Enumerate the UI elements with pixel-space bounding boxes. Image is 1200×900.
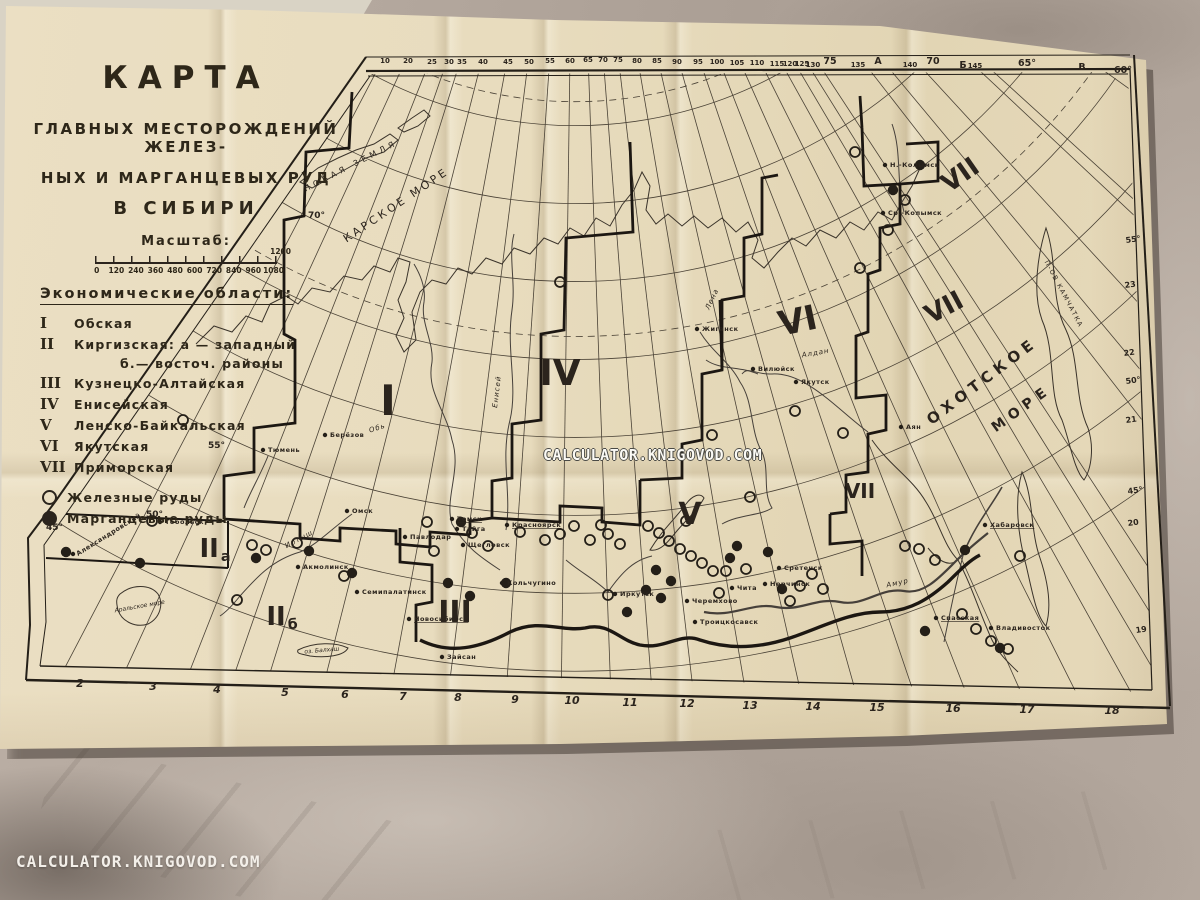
scale-bar-ruler bbox=[95, 256, 277, 264]
town-dot bbox=[455, 527, 459, 531]
river-label: Алдан bbox=[800, 347, 830, 360]
map-title: КАРТА bbox=[18, 60, 354, 96]
photo-scene: БерёзовТюменьТобольскОмскПавлодарАкмолин… bbox=[0, 0, 1200, 900]
legend-region-item: IVЕнисейская bbox=[40, 395, 330, 413]
bottom-edge-number: 8 bbox=[454, 691, 462, 704]
place-label: Кольчугино bbox=[507, 579, 556, 587]
iron-ore-point bbox=[838, 428, 848, 438]
meridian-line bbox=[637, 55, 753, 735]
place-label: Якутск bbox=[801, 378, 830, 386]
scale-tick-value: 240 bbox=[126, 266, 146, 275]
legend-heading: Экономические области: bbox=[40, 286, 293, 305]
legend-region-numeral: VI bbox=[40, 437, 74, 455]
bottom-edge-number: 12 bbox=[679, 697, 695, 710]
legend-region-numeral: V bbox=[40, 416, 74, 434]
town-dot bbox=[613, 592, 617, 596]
iron-ore-icon bbox=[42, 490, 57, 505]
manganese-ore-point bbox=[304, 546, 314, 556]
top-edge-number: 135 bbox=[851, 61, 866, 69]
top-edge-number: 65 bbox=[583, 56, 593, 64]
place-label: Тайга bbox=[462, 525, 486, 533]
region-numeral: VII bbox=[845, 479, 875, 503]
top-edge-number: 60° bbox=[1114, 65, 1132, 76]
town-dot bbox=[693, 620, 697, 624]
sakhalin-island bbox=[1018, 472, 1049, 626]
town-dot bbox=[450, 517, 454, 521]
top-edge-number: 65° bbox=[1018, 58, 1036, 69]
meridian-line bbox=[561, 55, 570, 735]
right-edge-number: 21 bbox=[1125, 414, 1138, 425]
right-edge-number: 50° bbox=[1125, 375, 1141, 386]
river-label: Енисей bbox=[491, 375, 503, 408]
top-edge-number: 35 bbox=[457, 58, 467, 66]
legend-region-name: Енисейская bbox=[74, 397, 169, 412]
bottom-edge-number: 13 bbox=[742, 699, 758, 712]
bottom-edge-number: 4 bbox=[212, 683, 221, 696]
manganese-ore-point bbox=[920, 626, 930, 636]
legend-region-numeral: III bbox=[40, 374, 74, 392]
river-lena bbox=[700, 332, 772, 524]
manganese-ore-icon bbox=[42, 511, 57, 526]
top-edge-number: 50 bbox=[524, 58, 534, 66]
place-label: Вилюйск bbox=[758, 365, 795, 373]
lake-label: оз. Балхаш bbox=[304, 645, 340, 655]
top-edge-number: 145 bbox=[968, 62, 983, 70]
region-numeral: III bbox=[438, 595, 472, 630]
top-edge-number: 80 bbox=[632, 57, 642, 65]
place-label: Владивосток bbox=[996, 624, 1051, 632]
legend-region-item: IIIКузнецко-Алтайская bbox=[40, 374, 330, 392]
place-label: Ср.-Колымск bbox=[888, 209, 942, 217]
region-numeral: VII bbox=[920, 285, 969, 330]
town-dot bbox=[403, 535, 407, 539]
place-label: Нерчинск bbox=[770, 580, 810, 588]
top-edge-number: 130 bbox=[806, 61, 821, 69]
legend-region-name: б.— восточ. районы bbox=[120, 356, 284, 371]
legend-region-name: Якутская bbox=[74, 439, 149, 454]
scale-tick-value: 720 bbox=[204, 266, 224, 275]
place-label: Омск bbox=[352, 507, 373, 515]
place-label: Зайсан bbox=[447, 653, 476, 661]
right-edge-number: 19 bbox=[1135, 624, 1148, 635]
iron-ore-point bbox=[261, 545, 271, 555]
right-edge-number: 20 bbox=[1127, 517, 1140, 528]
town-dot bbox=[296, 565, 300, 569]
manganese-ore-point bbox=[666, 576, 676, 586]
top-edge-number: Б bbox=[959, 60, 966, 71]
top-edge-number: 85 bbox=[652, 57, 662, 65]
meridian-line bbox=[963, 55, 1200, 735]
iron-ore-point bbox=[643, 521, 653, 531]
watermark-center: CALCULATOR.KNIGOVOD.COM bbox=[543, 446, 762, 464]
lake-label: Аральское море bbox=[113, 599, 166, 615]
town-dot bbox=[730, 586, 734, 590]
river-amur-lower bbox=[964, 487, 1002, 552]
town-dot bbox=[685, 599, 689, 603]
map-subtitle-line2: НЫХ И МАРГАНЦЕВЫХ РУД bbox=[18, 169, 354, 187]
legend-region-item: VIЯкутская bbox=[40, 437, 330, 455]
legend-ore-list: Железные рудыМарганцевые руды bbox=[40, 490, 330, 526]
place-label: Красноярск bbox=[512, 521, 561, 529]
place-label: Аян bbox=[906, 423, 921, 431]
town-dot bbox=[763, 582, 767, 586]
meridian-line bbox=[677, 55, 868, 735]
town-dot bbox=[345, 509, 349, 513]
top-edge-number: 40 bbox=[478, 58, 488, 66]
town-dot bbox=[934, 616, 938, 620]
boundary-region-4-west bbox=[470, 142, 633, 535]
manganese-ore-point bbox=[656, 593, 666, 603]
iron-ore-point bbox=[555, 277, 565, 287]
iron-ore-point bbox=[697, 558, 707, 568]
iron-ore-point bbox=[603, 529, 613, 539]
legend-region-item: IIКиргизская: а — западный bbox=[40, 335, 330, 353]
meridian-line bbox=[717, 55, 983, 735]
town-dot bbox=[883, 163, 887, 167]
title-block: КАРТА ГЛАВНЫХ МЕСТОРОЖДЕНИЙ ЖЕЛЕЗ- НЫХ И… bbox=[18, 60, 354, 275]
place-label: Троицкосавск bbox=[700, 618, 759, 626]
top-edge-number: 25 bbox=[427, 58, 437, 66]
top-edge-number: 30 bbox=[444, 58, 454, 66]
iron-ore-point bbox=[971, 624, 981, 634]
place-label: Черемхово bbox=[692, 597, 738, 605]
region-numeral: VII bbox=[936, 152, 986, 199]
iron-ore-point bbox=[615, 539, 625, 549]
meridian-line bbox=[383, 55, 508, 735]
scale-label: Масштаб: bbox=[18, 234, 354, 249]
meridian-line bbox=[790, 55, 1192, 735]
right-edge-number: 45° bbox=[1127, 485, 1143, 496]
top-edge-number: 105 bbox=[730, 59, 745, 67]
bottom-edge-number: 5 bbox=[281, 686, 289, 699]
iron-ore-point bbox=[429, 546, 439, 556]
manganese-ore-point bbox=[651, 565, 661, 575]
top-edge-number: 70 bbox=[598, 56, 608, 64]
region-numeral: V bbox=[678, 497, 702, 532]
manganese-ore-point bbox=[888, 185, 898, 195]
meridian-line bbox=[588, 55, 612, 735]
boundary-region-4-south bbox=[492, 480, 640, 525]
iron-ore-point bbox=[790, 406, 800, 416]
bottom-edge-number: 15 bbox=[869, 701, 885, 714]
meridian-line bbox=[698, 55, 928, 735]
manganese-ore-point bbox=[960, 545, 970, 555]
iron-ore-point bbox=[686, 551, 696, 561]
iron-ore-point bbox=[850, 147, 860, 157]
top-edge-number: 70 bbox=[926, 56, 940, 67]
map-subtitle-line3: В СИБИРИ bbox=[18, 198, 354, 219]
town-dot bbox=[461, 543, 465, 547]
town-dot bbox=[500, 581, 504, 585]
legend-region-numeral: I bbox=[40, 314, 74, 332]
top-edge-number: 60 bbox=[565, 57, 575, 65]
right-edge-number: 55° bbox=[1125, 234, 1141, 245]
town-dot bbox=[355, 590, 359, 594]
region-numeral: IIб bbox=[266, 602, 297, 633]
sea-label: КАРСКОЕ МОРЕ bbox=[341, 165, 451, 245]
top-edge-number: 10 bbox=[380, 57, 390, 65]
town-dot bbox=[989, 626, 993, 630]
top-edge-number: 45 bbox=[503, 58, 513, 66]
manganese-ore-point bbox=[995, 643, 1005, 653]
manganese-ore-point bbox=[763, 547, 773, 557]
town-dot bbox=[751, 367, 755, 371]
legend-region-numeral: II bbox=[40, 335, 74, 353]
top-edge-number: 75 bbox=[823, 56, 836, 67]
legend-ore-label: Марганцевые руды bbox=[67, 511, 228, 526]
place-label: Н.-Колымск bbox=[890, 161, 940, 169]
town-dot bbox=[71, 552, 75, 556]
bottom-edge-number: 7 bbox=[399, 690, 407, 703]
boundary-region-7-west bbox=[830, 128, 900, 514]
manganese-ore-point bbox=[135, 558, 145, 568]
manganese-ore-point bbox=[622, 607, 632, 617]
bottom-edge-number: 6 bbox=[341, 688, 349, 701]
legend-region-item: VIIПриморская bbox=[40, 458, 330, 476]
scale-tick-value: 480 bbox=[165, 266, 185, 275]
manganese-ore-point bbox=[251, 553, 261, 563]
iron-ore-point bbox=[741, 564, 751, 574]
scale-bar: 1200 01202403604806007208409601080 bbox=[95, 256, 277, 275]
manganese-ore-point bbox=[61, 547, 71, 557]
scale-tick-value: 840 bbox=[224, 266, 244, 275]
top-edge-number: 140 bbox=[903, 61, 918, 69]
top-edge-number: 90 bbox=[672, 58, 682, 66]
bottom-edge-number: 16 bbox=[945, 702, 961, 715]
iron-ore-point bbox=[707, 430, 717, 440]
legend-ore-label: Железные руды bbox=[67, 490, 203, 505]
iron-ore-point bbox=[721, 566, 731, 576]
bottom-edge-number: 11 bbox=[622, 696, 637, 709]
region-numeral: VI bbox=[774, 298, 820, 345]
town-dot bbox=[794, 380, 798, 384]
iron-ore-point bbox=[585, 535, 595, 545]
top-edge-number: 75 bbox=[613, 56, 623, 64]
town-dot bbox=[983, 523, 987, 527]
legend-region-list: IОбскаяIIКиргизская: а — западныйб.— вос… bbox=[40, 314, 330, 476]
town-dot bbox=[881, 211, 885, 215]
town-dot bbox=[777, 566, 781, 570]
legend-region-item: IОбская bbox=[40, 314, 330, 332]
place-label: Акмолинск bbox=[303, 563, 349, 571]
meridian-line bbox=[737, 55, 1040, 735]
place-label: Семипалатинск bbox=[362, 588, 427, 596]
region-numeral: IIа bbox=[199, 534, 230, 565]
bottom-edge-number: 9 bbox=[511, 693, 519, 706]
top-edge-number: 100 bbox=[710, 58, 725, 66]
bottom-edge-number: 2 bbox=[76, 677, 84, 690]
river-label: Амур bbox=[885, 577, 910, 590]
top-edge-number: 95 bbox=[693, 58, 703, 66]
bottom-edge-number: 17 bbox=[1019, 703, 1035, 716]
place-label: Спасская bbox=[941, 614, 979, 622]
scale-tick-values: 01202403604806007208409601080 bbox=[87, 266, 283, 275]
town-dot bbox=[899, 425, 903, 429]
scale-tick-value: 120 bbox=[107, 266, 127, 275]
scale-tick-value: 0 bbox=[87, 266, 107, 275]
place-label: Берёзов bbox=[330, 431, 364, 439]
boundary-region-7-south bbox=[830, 514, 862, 576]
manganese-ore-point bbox=[443, 578, 453, 588]
top-edge-number: В bbox=[1078, 62, 1085, 73]
legend-ore-item: Марганцевые руды bbox=[40, 511, 330, 526]
meridian-line bbox=[443, 55, 529, 735]
top-edge-number: 55 bbox=[545, 57, 555, 65]
watermark-bottom-left: CALCULATOR.KNIGOVOD.COM bbox=[16, 852, 261, 871]
place-label: Хабаровск bbox=[990, 521, 1034, 529]
scale-tick-value: 1080 bbox=[263, 266, 283, 275]
scale-tick-value: 600 bbox=[185, 266, 205, 275]
iron-ore-point bbox=[708, 566, 718, 576]
bottom-edge-number: 10 bbox=[564, 694, 580, 707]
legend-region-name: Ленско-Байкальская bbox=[74, 418, 246, 433]
river-angara bbox=[566, 556, 652, 592]
legend-region-name: Кузнецко-Алтайская bbox=[74, 376, 246, 391]
region-numeral: IV bbox=[539, 353, 580, 394]
legend-region-item: б.— восточ. районы bbox=[40, 356, 330, 371]
legend-region-numeral: IV bbox=[40, 395, 74, 413]
manganese-ore-point bbox=[725, 553, 735, 563]
town-dot bbox=[695, 327, 699, 331]
town-dot bbox=[407, 617, 411, 621]
legend-ore-item: Железные руды bbox=[40, 490, 330, 505]
right-edge-number: 23 bbox=[1124, 280, 1136, 290]
place-label: Сретенск bbox=[784, 564, 823, 572]
river-yenisei bbox=[506, 234, 514, 530]
sea-label: П-ОВ КАМЧАТКА bbox=[1043, 259, 1085, 329]
map-subtitle-line1: ГЛАВНЫХ МЕСТОРОЖДЕНИЙ ЖЕЛЕЗ- bbox=[18, 120, 354, 156]
iron-ore-point bbox=[930, 555, 940, 565]
legend-region-name: Киргизская: а — западный bbox=[74, 337, 296, 352]
scale-tick-value: 960 bbox=[244, 266, 264, 275]
scale-end-value: 1200 bbox=[270, 247, 291, 256]
place-label: Чита bbox=[737, 584, 757, 592]
place-label: Иркутск bbox=[620, 590, 654, 598]
iron-ore-point bbox=[540, 535, 550, 545]
top-edge-number: А bbox=[874, 56, 882, 67]
bottom-edge-number: 14 bbox=[805, 700, 820, 713]
right-edge-number: 22 bbox=[1123, 348, 1135, 358]
legend-region-numeral: VII bbox=[40, 458, 74, 476]
place-label: Павлодар bbox=[410, 533, 451, 541]
top-edge-number: 20 bbox=[403, 57, 413, 65]
top-edge-number: 110 bbox=[750, 59, 765, 67]
manganese-ore-point bbox=[732, 541, 742, 551]
scale-tick-value: 360 bbox=[146, 266, 166, 275]
river-label: Лена bbox=[703, 287, 720, 312]
iron-ore-point bbox=[569, 521, 579, 531]
bottom-edge-number: 18 bbox=[1104, 704, 1120, 717]
iron-ore-point bbox=[247, 540, 257, 550]
legend-region-name: Приморская bbox=[74, 460, 174, 475]
iron-ore-point bbox=[422, 517, 432, 527]
place-label: Жиганск bbox=[702, 325, 739, 333]
town-dot bbox=[440, 655, 444, 659]
legend-region-name: Обская bbox=[74, 316, 133, 331]
place-label: Томск bbox=[457, 515, 482, 523]
iron-ore-point bbox=[785, 596, 795, 606]
town-dot bbox=[505, 523, 509, 527]
bottom-edge-number: 3 bbox=[149, 680, 157, 693]
legend-region-item: VЛенско-Байкальская bbox=[40, 416, 330, 434]
legend: Экономические области: IОбскаяIIКиргизск… bbox=[40, 283, 330, 532]
region-numeral: I bbox=[380, 376, 396, 425]
iron-ore-point bbox=[914, 544, 924, 554]
place-label: Щегловск bbox=[468, 541, 510, 549]
